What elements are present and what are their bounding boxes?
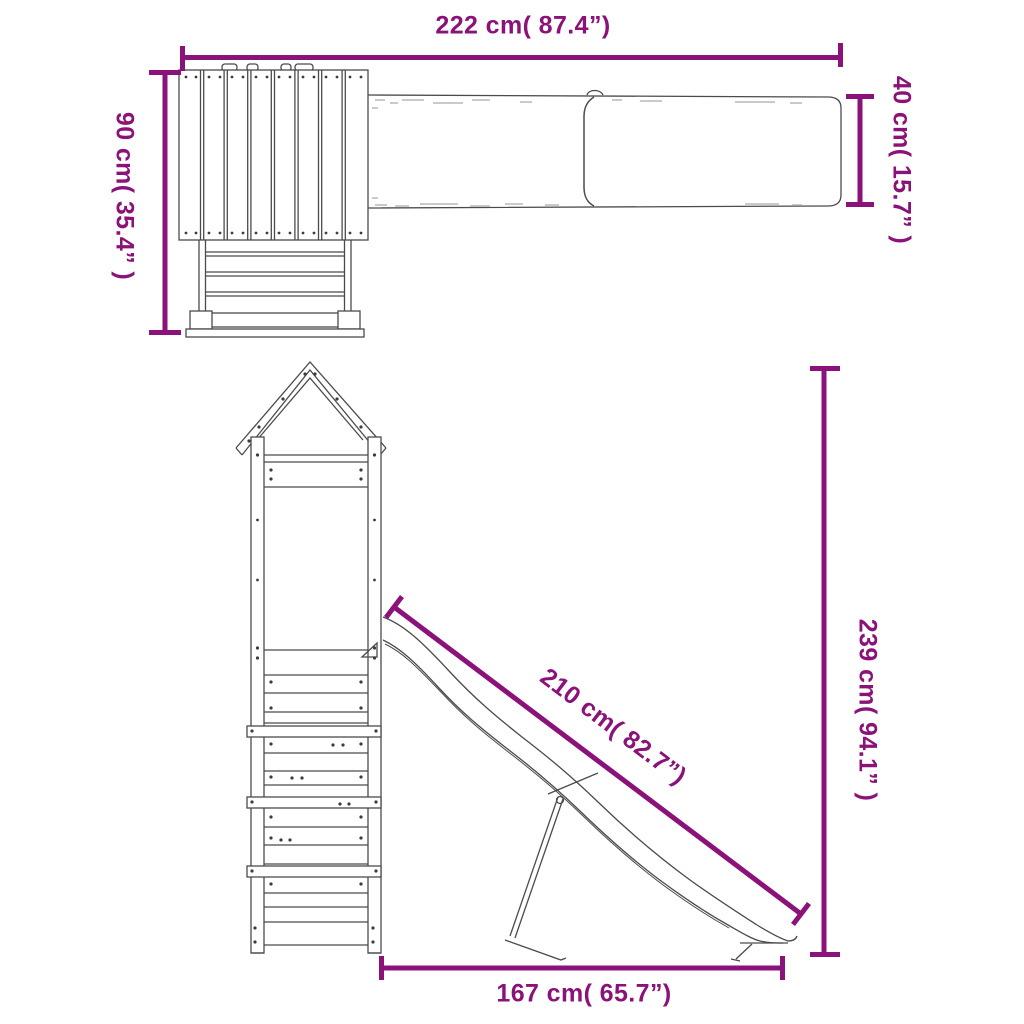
dim-label-slide-width: 40 cm( 15.7” ) bbox=[887, 76, 916, 244]
dim-line-depth bbox=[149, 71, 181, 335]
dimension-diagram: 222 cm( 87.4”) 90 cm( 35.4” ) 40 cm( 15.… bbox=[0, 0, 1024, 1024]
dim-label-height: 239 cm( 94.1” ) bbox=[853, 619, 882, 802]
dim-label-overall-width: 222 cm( 87.4”) bbox=[435, 12, 610, 41]
dim-line-base-width bbox=[380, 956, 784, 980]
dim-label-base-width: 167 cm( 65.7”) bbox=[496, 980, 671, 1009]
top-rail-shape bbox=[264, 455, 368, 487]
dim-label-depth: 90 cm( 35.4” ) bbox=[110, 112, 139, 280]
roof-plan-shape bbox=[179, 70, 368, 240]
diagram-line-art bbox=[0, 0, 1024, 1024]
slide-profile-shape bbox=[383, 617, 797, 961]
slide-plan-shape bbox=[368, 91, 841, 209]
top-view-drawing bbox=[179, 64, 841, 337]
dim-line-slide-length bbox=[386, 597, 809, 925]
platform-cladding-shape bbox=[247, 453, 381, 953]
ladder-plan-shape bbox=[186, 240, 364, 337]
dim-line-overall-width bbox=[180, 43, 843, 71]
front-view-drawing bbox=[236, 362, 797, 961]
dim-line-height bbox=[810, 367, 840, 956]
dim-line-slide-width bbox=[846, 95, 874, 206]
